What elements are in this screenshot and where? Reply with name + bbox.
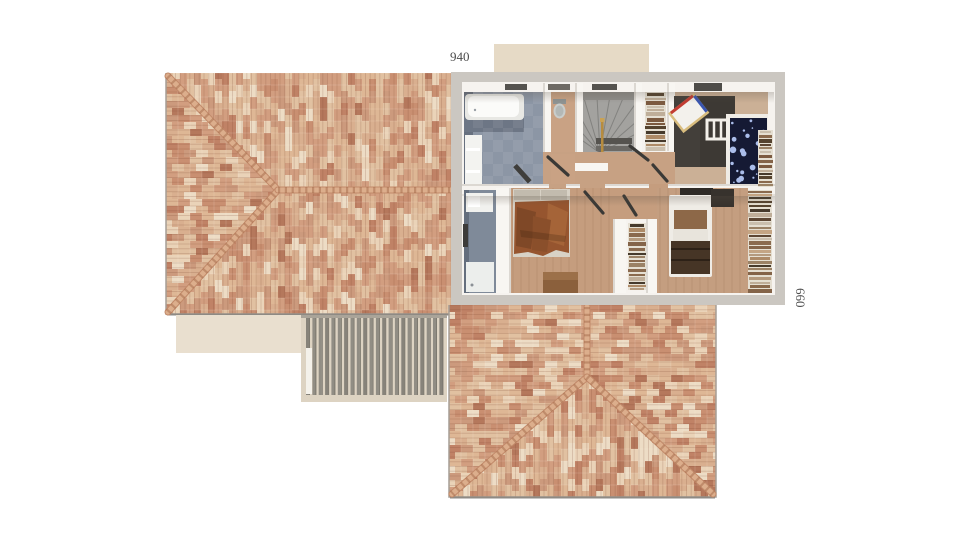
svg-text:660: 660 [793,288,808,308]
svg-text:940: 940 [450,49,470,64]
